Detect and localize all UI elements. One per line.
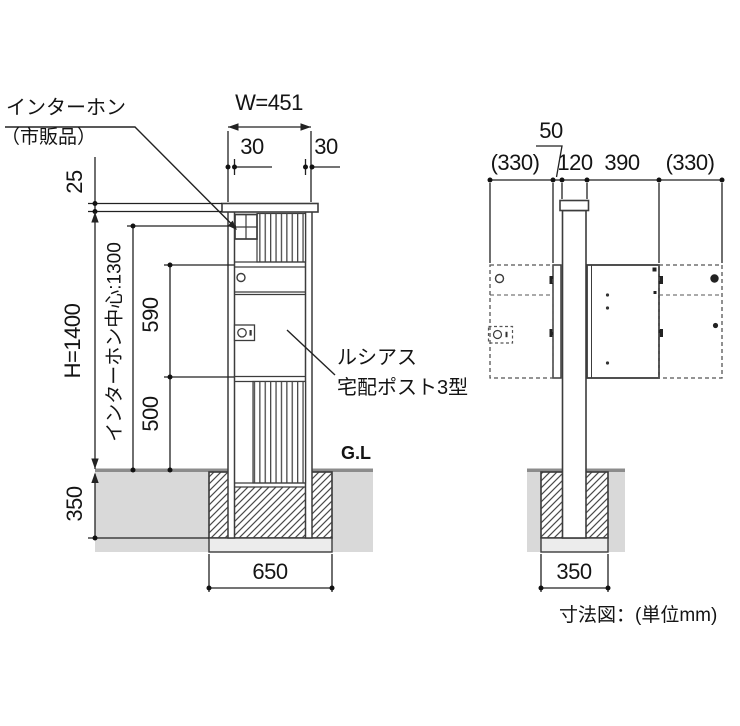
dim-label-footing-front: 650 [252, 561, 287, 583]
dimension-drawing: インターホン （市販品） W=451 30 30 25 H=1400 インターホ… [0, 0, 740, 726]
post-pole-cap [560, 201, 589, 211]
drawing-note: 寸法図：(単位mm) [559, 606, 717, 625]
doorbell-button [237, 274, 245, 282]
front-door-open-outline [489, 265, 554, 378]
dim-intercom-1300 [127, 224, 236, 473]
footing-slab [209, 538, 332, 552]
front-door-closed [553, 265, 561, 378]
intercom-callout-line2: （市販品） [1, 128, 96, 147]
dim-frame-30 [226, 159, 341, 175]
dim-label-embed-depth: 350 [64, 486, 86, 521]
dim-label-front-swing: (330) [491, 152, 540, 174]
rear-door-open-outline [659, 265, 722, 378]
footing-slab [541, 538, 608, 552]
dim-label-width: W=451 [235, 92, 303, 114]
lock-detail [235, 325, 255, 341]
product-callout-line1: ルシアス [337, 348, 417, 368]
frame-column-left [228, 211, 235, 538]
dim-label-below-box: 500 [140, 396, 162, 431]
delivery-box-body [587, 265, 659, 378]
dim-label-rear-swing: (330) [666, 152, 715, 174]
dim-label-frame-right: 30 [314, 136, 337, 158]
ground-level-label: G.L [341, 444, 371, 462]
dim-label-height: H=1400 [62, 304, 84, 379]
dim-cap-25 [88, 157, 222, 214]
post-cap [222, 204, 318, 213]
dim-label-cap: 25 [64, 170, 86, 193]
dim-label-front-gap: 50 [539, 120, 562, 142]
dim-label-depth: 390 [604, 152, 639, 174]
dim-label-box-height: 590 [140, 297, 162, 332]
dim-label-intercom-center: インターホン中心:1300 [106, 242, 125, 442]
intercom-callout-line1: インターホン [6, 98, 126, 118]
frame-column-right [306, 211, 313, 538]
post-pole [563, 211, 587, 539]
dim-label-footing-side: 350 [556, 561, 591, 583]
dim-height-1400 [91, 212, 98, 469]
dim-590-500 [164, 263, 234, 473]
product-callout-line2: 宅配ポスト3型 [337, 378, 468, 398]
dim-label-frame-left: 30 [240, 136, 263, 158]
dim-label-post: 120 [557, 152, 592, 174]
